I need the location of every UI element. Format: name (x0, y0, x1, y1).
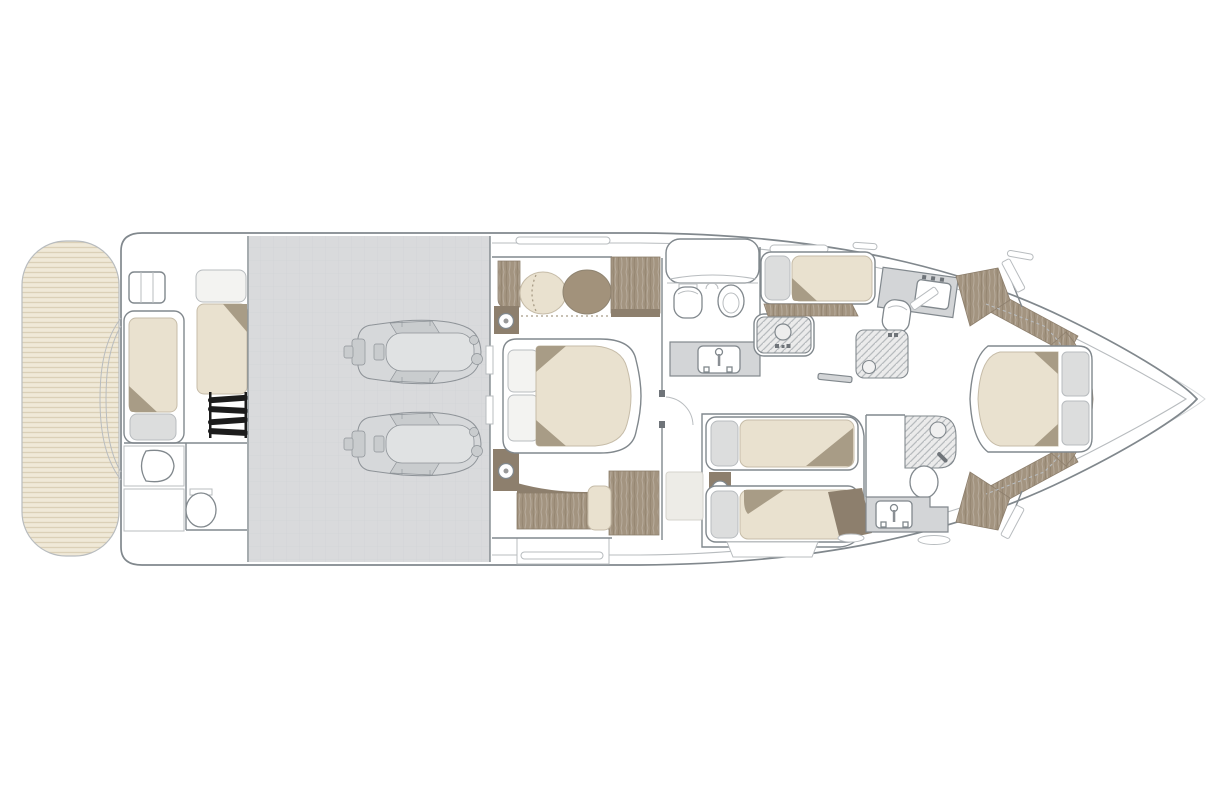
faucet-mark (775, 344, 779, 348)
deck-hatch (129, 272, 165, 303)
side-deck-handrail (1007, 250, 1034, 260)
faucet-stem (718, 354, 721, 366)
faucet-knob (881, 522, 886, 527)
engine-room-floor-grid (249, 236, 490, 562)
round-sink-icon (775, 324, 791, 340)
twin-bed-fwd-pillow (711, 421, 738, 466)
bow-bed-mattress (978, 352, 1058, 446)
bedside-lamp-dot (504, 319, 509, 324)
toilet-icon (674, 287, 702, 318)
vip-pillow-1 (508, 350, 538, 392)
vip-bed-mattress (536, 346, 631, 446)
faucet-knob (727, 367, 732, 372)
bow-bedside-panel-bottom (1062, 401, 1089, 445)
door-post (659, 390, 665, 397)
side-deck-step-pill (521, 552, 603, 559)
toilet-icon (881, 298, 912, 333)
vip-pillow-2 (508, 395, 538, 441)
vip-side-cabinet (609, 471, 659, 535)
toilet-icon (910, 466, 938, 498)
yacht-floor-plan (0, 0, 1215, 810)
deck-detail-oval (838, 534, 864, 542)
shower-head-icon (930, 422, 946, 438)
engine-port (344, 412, 483, 476)
bench-cushion (588, 486, 611, 530)
faucet-mark (940, 277, 945, 282)
faucet-stem (893, 510, 896, 522)
faucet-mark (922, 275, 927, 280)
door-post (659, 421, 665, 428)
vip-corner-cabinet (498, 261, 520, 307)
stair-cabinet (666, 239, 759, 283)
faucet-mark (787, 344, 791, 348)
bidet-icon (718, 285, 744, 317)
crew-toilet (186, 493, 216, 527)
pouf-light (520, 272, 566, 314)
shower-control (894, 333, 898, 337)
floor-plan-canvas (0, 0, 1215, 810)
shower-tray (905, 416, 956, 468)
deck-detail-oval (918, 536, 950, 545)
hull-window (486, 396, 493, 424)
twin-step (727, 542, 818, 557)
crew-lower-cabinet (124, 489, 184, 531)
engine-starboard (344, 320, 483, 384)
side-deck-step (517, 538, 609, 564)
faucet-knob (704, 367, 709, 372)
faucet-knob (903, 522, 908, 527)
hull-window (486, 346, 493, 374)
side-deck-handrail (516, 237, 610, 244)
utility-counter (754, 314, 814, 356)
side-deck-handrail (853, 242, 877, 250)
crew-berth-port-pillow (130, 414, 176, 440)
pouf-dark (563, 270, 611, 314)
vip-wardrobe (611, 257, 660, 313)
single-cabin-floor-band (764, 304, 858, 316)
swim-platform (22, 241, 119, 556)
single-berth-pillow (765, 256, 790, 300)
bedside-lamp-dot (504, 469, 509, 474)
shower-control (888, 333, 892, 337)
corridor-step (666, 472, 703, 520)
vip-wardrobe-base (611, 309, 660, 317)
shower-drain-icon (863, 361, 876, 374)
bow-bedside-panel-top (1062, 352, 1089, 396)
crew-washbasin (142, 450, 175, 481)
engine-room (248, 236, 490, 562)
crew-berth-stbd-headboard (196, 270, 246, 302)
faucet-mark (782, 345, 785, 348)
faucet-mark (931, 276, 936, 281)
twin-bed-aft-pillow (711, 491, 738, 538)
